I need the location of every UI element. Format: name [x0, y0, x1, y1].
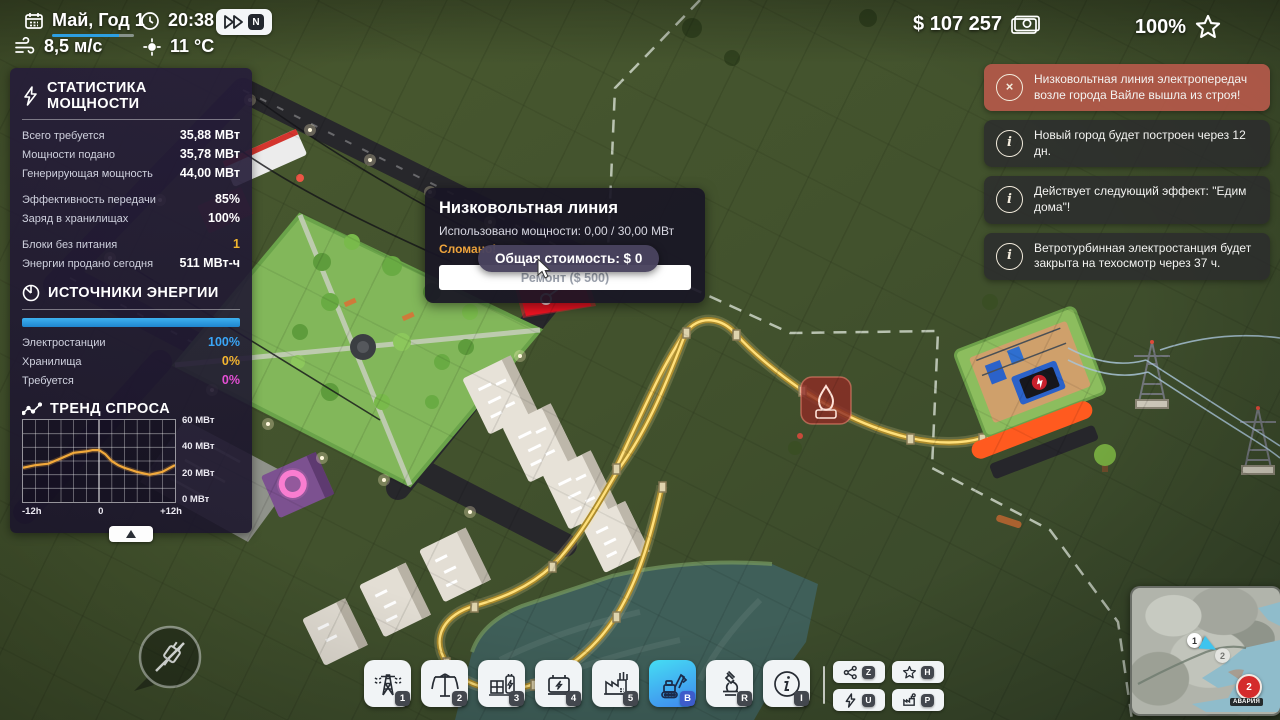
stat-row: Блоки без питания1: [22, 237, 240, 251]
stat-label: Энергии продано сегодня: [22, 258, 153, 270]
power-stats-title: СТАТИСТИКА МОЩНОСТИ: [47, 80, 240, 112]
calendar-icon: [24, 11, 44, 31]
y-tick: 20 МВт: [182, 468, 215, 479]
info-circle-icon: i: [996, 130, 1023, 157]
shortcut-badge: 2: [452, 691, 467, 706]
tooltip-title: Низковольтная линия: [439, 199, 691, 218]
y-tick: 60 МВт: [182, 415, 215, 426]
minimap-marker-label: 2: [1220, 651, 1225, 661]
x-tick: +12h: [160, 506, 182, 517]
stat-label: Эффективность передачи: [22, 194, 156, 206]
fast-forward-icon: [224, 15, 243, 29]
tool-bulldozer[interactable]: B: [649, 660, 696, 707]
sun-icon: [142, 37, 162, 57]
tool-substation[interactable]: 3: [478, 660, 525, 707]
close-circle-icon: ×: [996, 74, 1023, 101]
overlay-network-button[interactable]: Z: [833, 661, 885, 683]
tooltip-usage: Использовано мощности: 0,00 / 30,00 МВт: [439, 224, 691, 238]
factory-icon: [902, 693, 917, 708]
wind-display: 8,5 м/с: [14, 36, 102, 57]
stat-row: Генерирующая мощность44,00 МВт: [22, 166, 240, 180]
stat-value: 0%: [222, 354, 240, 368]
stat-value: 100%: [208, 211, 240, 225]
stat-row: Заряд в хранилищах100%: [22, 211, 240, 225]
shortcut-badge: Z: [862, 666, 875, 679]
notification-text: Низковольтная линия электропередач возле…: [1034, 72, 1258, 103]
shortcut-badge: R: [737, 691, 752, 706]
network-icon: [843, 665, 858, 680]
chart-plot-area: [22, 419, 176, 503]
shortcut-badge: 1: [395, 691, 410, 706]
time-display: 20:38: [140, 10, 214, 31]
stat-row: Всего требуется35,88 МВт: [22, 128, 240, 142]
notification-stack: × Низковольтная линия электропередач воз…: [984, 64, 1270, 280]
demand-trend-title: ТРЕНД СПРОСА: [50, 401, 170, 417]
game-speed-button[interactable]: N: [216, 9, 272, 35]
notification-info[interactable]: i Действует следующий эффект: "Едим дома…: [984, 176, 1270, 223]
chart-x-labels: -12h 0 +12h: [22, 506, 182, 517]
shortcut-badge: P: [921, 694, 934, 707]
tool-factory[interactable]: 5: [592, 660, 639, 707]
total-cost-tooltip: Общая стоимость: $ 0: [478, 245, 659, 272]
shortcut-badge: 4: [566, 691, 581, 706]
approval-display: 100%: [1135, 13, 1222, 41]
overlay-production-button[interactable]: P: [892, 689, 944, 711]
notification-error[interactable]: × Низковольтная линия электропередач воз…: [984, 64, 1270, 111]
stat-row: Эффективность передачи85%: [22, 192, 240, 206]
stat-label: Заряд в хранилищах: [22, 213, 128, 225]
shortcut-badge: I: [794, 691, 809, 706]
notification-text: Ветротурбинная электростанция будет закр…: [1034, 241, 1258, 272]
power-panel: СТАТИСТИКА МОЩНОСТИ Всего требуется35,88…: [10, 68, 252, 533]
x-tick: -12h: [22, 506, 42, 517]
build-toolbar: 1 2 3 4: [364, 660, 810, 707]
trend-line-icon: [22, 402, 42, 416]
chart-y-labels: 60 МВт 40 МВт 20 МВт 0 МВт: [182, 419, 222, 501]
speed-mode-badge: N: [248, 14, 264, 30]
stat-row: Энергии продано сегодня511 МВт-ч: [22, 256, 240, 270]
stat-row: Хранилища0%: [22, 354, 240, 368]
temperature-label: 11 °C: [170, 36, 214, 57]
tool-high-voltage-line[interactable]: 1: [364, 660, 411, 707]
fire-hazard-icon[interactable]: [801, 377, 851, 424]
chevron-up-icon: [126, 530, 136, 538]
energy-sources-header: ИСТОЧНИКИ ЭНЕРГИИ: [22, 284, 240, 302]
money-label: $ 107 257: [913, 13, 1002, 36]
wind-label: 8,5 м/с: [44, 36, 102, 57]
stat-label: Хранилища: [22, 356, 82, 368]
stat-row: Мощности подано35,78 МВт: [22, 147, 240, 161]
notification-info[interactable]: i Новый город будет построен через 12 дн…: [984, 120, 1270, 167]
stat-label: Требуется: [22, 375, 74, 387]
stat-row: Электростанции100%: [22, 335, 240, 349]
notification-text: Новый город будет построен через 12 дн.: [1034, 128, 1258, 159]
y-tick: 40 МВт: [182, 441, 215, 452]
minimap[interactable]: 1 2 2 АВАРИЯ: [1130, 586, 1280, 716]
overlay-toolbar: Z H U P: [833, 661, 944, 711]
demand-trend-chart: 60 МВт 40 МВт 20 МВт 0 МВт: [22, 419, 240, 503]
tool-info[interactable]: I: [763, 660, 810, 707]
power-stats-header: СТАТИСТИКА МОЩНОСТИ: [22, 80, 240, 112]
stat-value: 44,00 МВт: [180, 166, 240, 180]
overlay-favorites-button[interactable]: H: [892, 661, 944, 683]
minimap-alert-label: АВАРИЯ: [1230, 698, 1263, 706]
shortcut-badge: U: [862, 694, 875, 707]
tool-low-voltage-line[interactable]: 2: [421, 660, 468, 707]
stat-value: 35,78 МВт: [180, 147, 240, 161]
x-tick: 0: [98, 506, 103, 517]
divider: [22, 309, 240, 310]
game-screen: Май, Год 1 20:38 N: [0, 0, 1280, 720]
toolbar-divider: [823, 666, 825, 704]
minimap-marker-label: 1: [1192, 636, 1197, 646]
minimap-city-marker: 2: [1215, 648, 1230, 663]
tool-battery-storage[interactable]: 4: [535, 660, 582, 707]
info-circle-icon: i: [996, 243, 1023, 270]
stat-label: Генерирующая мощность: [22, 168, 153, 180]
energy-sources-title: ИСТОЧНИКИ ЭНЕРГИИ: [48, 285, 219, 301]
shortcut-badge: 3: [509, 691, 524, 706]
tool-research[interactable]: R: [706, 660, 753, 707]
lightning-icon: [22, 86, 39, 106]
wind-icon: [14, 37, 36, 57]
approval-label: 100%: [1135, 16, 1186, 39]
lightning-icon: [843, 693, 858, 708]
stat-value: 35,88 МВт: [180, 128, 240, 142]
stat-value: 85%: [215, 192, 240, 206]
money-display: $ 107 257: [913, 13, 1040, 36]
clock-icon: [140, 11, 160, 31]
star-icon: [902, 665, 917, 680]
temperature-display: 11 °C: [142, 36, 214, 57]
overlay-power-button[interactable]: U: [833, 689, 885, 711]
y-tick: 0 МВт: [182, 494, 209, 505]
energy-mix-bar: [22, 318, 240, 327]
energy-mix-bar-fill: [22, 318, 240, 327]
shortcut-badge: B: [680, 691, 695, 706]
date-display: Май, Год 1: [24, 10, 145, 31]
notification-info[interactable]: i Ветротурбинная электростанция будет за…: [984, 233, 1270, 280]
minimap-alert-badge[interactable]: 2: [1236, 674, 1262, 700]
banknote-icon: [1010, 14, 1040, 36]
stat-label: Мощности подано: [22, 149, 115, 161]
minimap-alert-count: 2: [1246, 682, 1252, 693]
info-circle-icon: i: [996, 186, 1023, 213]
notification-text: Действует следующий эффект: "Едим дома"!: [1034, 184, 1258, 215]
shortcut-badge: 5: [623, 691, 638, 706]
date-label: Май, Год 1: [52, 10, 145, 31]
stat-value: 511 МВт-ч: [180, 256, 240, 270]
stat-label: Всего требуется: [22, 130, 105, 142]
panel-collapse-button[interactable]: [109, 526, 153, 542]
stat-value-unpowered: 1: [233, 237, 240, 251]
stat-value: 100%: [208, 335, 240, 349]
stat-row: Требуется0%: [22, 373, 240, 387]
pie-chart-icon: [22, 284, 40, 302]
time-label: 20:38: [168, 10, 214, 31]
stat-value: 0%: [222, 373, 240, 387]
stat-label: Электростанции: [22, 337, 105, 349]
star-icon: [1194, 13, 1222, 41]
divider: [22, 119, 240, 120]
shortcut-badge: H: [921, 666, 934, 679]
stat-label: Блоки без питания: [22, 239, 117, 251]
